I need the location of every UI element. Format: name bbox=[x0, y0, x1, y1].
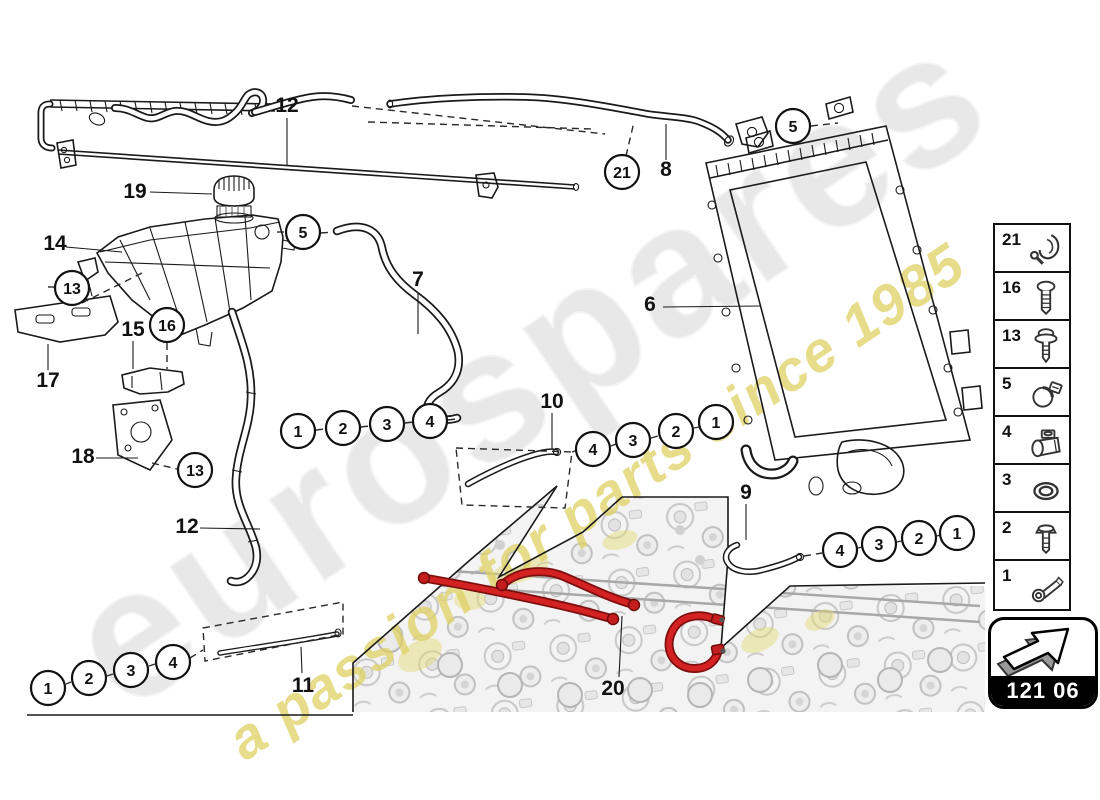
svg-text:4: 4 bbox=[589, 442, 598, 459]
svg-text:3: 3 bbox=[127, 663, 136, 680]
pipe-clip-icon bbox=[1027, 422, 1065, 462]
legend-item-4[interactable]: 4 bbox=[995, 417, 1069, 465]
callout-5-tank[interactable]: 5 bbox=[286, 215, 320, 249]
screw-washer-icon bbox=[1027, 326, 1065, 366]
legend-item-5[interactable]: 5 bbox=[995, 369, 1069, 417]
parts-legend: 21 16 13 bbox=[993, 223, 1071, 611]
part-label-17[interactable]: 17 bbox=[36, 369, 59, 392]
part-label-9[interactable]: 9 bbox=[740, 481, 752, 504]
callout-5-radiator[interactable]: 5 bbox=[776, 109, 810, 143]
callout-21[interactable]: 21 bbox=[605, 155, 639, 189]
part-label-12[interactable]: 12 bbox=[275, 94, 298, 117]
svg-text:2: 2 bbox=[85, 671, 94, 688]
svg-text:5: 5 bbox=[789, 119, 798, 136]
part-label-10[interactable]: 10 bbox=[540, 390, 563, 413]
part-label-14[interactable]: 14 bbox=[43, 232, 67, 255]
svg-text:4: 4 bbox=[836, 543, 845, 560]
svg-text:4: 4 bbox=[426, 414, 435, 431]
part-label-15[interactable]: 15 bbox=[121, 318, 145, 341]
retainer-clip-icon bbox=[1027, 230, 1065, 270]
legend-item-16[interactable]: 16 bbox=[995, 273, 1069, 321]
banjo-bolt-icon bbox=[1027, 566, 1065, 606]
svg-text:13: 13 bbox=[63, 281, 81, 298]
svg-text:2: 2 bbox=[672, 424, 681, 441]
hose-clamp-icon bbox=[1027, 374, 1065, 414]
section-code-box[interactable]: 121 06 bbox=[988, 617, 1098, 709]
bolt-icon bbox=[1027, 518, 1065, 558]
legend-number: 4 bbox=[1002, 422, 1011, 442]
svg-text:16: 16 bbox=[158, 318, 176, 335]
svg-text:1: 1 bbox=[953, 526, 962, 543]
parts-diagram: eurospares a passion for parts since 198… bbox=[0, 0, 1100, 800]
svg-text:21: 21 bbox=[613, 165, 631, 182]
part-label-18[interactable]: 18 bbox=[71, 445, 95, 468]
svg-text:3: 3 bbox=[629, 433, 638, 450]
parts-diagram-page: eurospares a passion for parts since 198… bbox=[0, 0, 1100, 800]
seal-ring-icon bbox=[1027, 470, 1065, 510]
legend-number: 16 bbox=[1002, 278, 1021, 298]
part-label-6[interactable]: 6 bbox=[644, 293, 656, 316]
svg-text:4: 4 bbox=[169, 655, 178, 672]
legend-number: 1 bbox=[1002, 566, 1011, 586]
svg-text:5: 5 bbox=[299, 225, 308, 242]
svg-text:1: 1 bbox=[44, 681, 53, 698]
direction-arrow-icon bbox=[994, 622, 1094, 680]
legend-number: 13 bbox=[1002, 326, 1021, 346]
legend-item-3[interactable]: 3 bbox=[995, 465, 1069, 513]
svg-text:1: 1 bbox=[294, 424, 303, 441]
callout-16[interactable]: 16 bbox=[150, 308, 184, 342]
legend-number: 21 bbox=[1002, 230, 1021, 250]
screw-icon bbox=[1027, 278, 1065, 318]
svg-text:2: 2 bbox=[339, 421, 348, 438]
legend-item-2[interactable]: 2 bbox=[995, 513, 1069, 561]
svg-text:2: 2 bbox=[915, 531, 924, 548]
callout-13-upper[interactable]: 13 bbox=[55, 271, 89, 305]
svg-text:13: 13 bbox=[186, 463, 204, 480]
svg-text:3: 3 bbox=[875, 537, 884, 554]
part-label-19[interactable]: 19 bbox=[123, 180, 146, 203]
callout-13-lower[interactable]: 13 bbox=[178, 453, 212, 487]
svg-text:3: 3 bbox=[383, 417, 392, 434]
part-label-8[interactable]: 8 bbox=[660, 158, 672, 181]
legend-item-13[interactable]: 13 bbox=[995, 321, 1069, 369]
part-label-20[interactable]: 20 bbox=[601, 677, 624, 700]
legend-number: 3 bbox=[1002, 470, 1011, 490]
part-label-12b[interactable]: 12 bbox=[175, 515, 198, 538]
part-label-7[interactable]: 7 bbox=[412, 268, 424, 291]
legend-number: 2 bbox=[1002, 518, 1011, 538]
legend-item-21[interactable]: 21 bbox=[995, 225, 1069, 273]
svg-text:1: 1 bbox=[712, 415, 721, 432]
legend-item-1[interactable]: 1 bbox=[995, 561, 1069, 609]
part-label-11[interactable]: 11 bbox=[292, 674, 315, 697]
section-code: 121 06 bbox=[991, 676, 1095, 706]
legend-number: 5 bbox=[1002, 374, 1011, 394]
